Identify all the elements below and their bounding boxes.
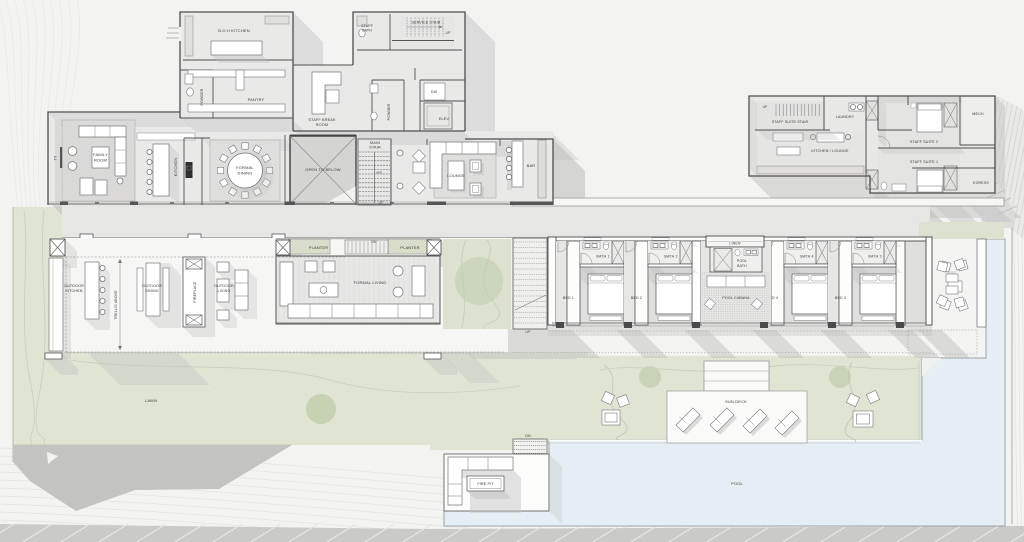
svg-text:PLANTER: PLANTER [309,245,329,250]
svg-text:MAIN: MAIN [370,141,380,145]
svg-text:EGRESS: EGRESS [973,181,989,185]
svg-text:DINING: DINING [145,289,159,293]
svg-text:ROOM: ROOM [94,158,107,163]
svg-text:STAFF SUITE 2: STAFF SUITE 2 [910,140,938,144]
svg-text:FAMILY: FAMILY [93,152,108,157]
svg-text:STAIR: STAIR [369,146,381,150]
svg-text:OUTDOOR: OUTDOOR [214,284,234,288]
svg-text:BAR: BAR [527,163,536,168]
svg-text:OPEN TO BELOW: OPEN TO BELOW [305,167,340,172]
svg-text:LINEN: LINEN [729,242,741,246]
svg-text:BATH: BATH [362,29,372,33]
svg-text:FIREPLACE: FIREPLACE [193,281,197,303]
svg-text:BATH: BATH [737,264,747,268]
svg-text:(AP): (AP) [376,171,383,175]
svg-text:STAFF: STAFF [361,24,374,28]
svg-text:UP: UP [763,105,768,109]
svg-text:BATH 3: BATH 3 [868,255,881,259]
svg-text:KITCHEN: KITCHEN [173,158,178,177]
svg-text:FORMAL LIVING: FORMAL LIVING [354,280,387,285]
svg-text:PANTRY: PANTRY [248,97,265,102]
svg-text:POWDER: POWDER [387,103,391,120]
svg-text:UP: UP [446,31,452,35]
svg-text:DN: DN [371,240,377,244]
svg-text:STAFF SUITE STAIR: STAFF SUITE STAIR [772,120,809,124]
svg-text:STAFF BREAK: STAFF BREAK [308,118,336,122]
svg-text:LAUNDRY: LAUNDRY [836,115,855,119]
svg-text:DN: DN [525,434,531,438]
svg-text:LAWN: LAWN [145,398,157,403]
svg-text:KITCHEN / LOUNGE: KITCHEN / LOUNGE [811,149,849,153]
svg-text:BED 2: BED 2 [631,296,642,300]
svg-text:SERVICE STAIR: SERVICE STAIR [412,21,441,25]
svg-text:POWDER: POWDER [200,88,204,105]
svg-text:DW: DW [431,90,438,94]
svg-text:OUTDOOR: OUTDOOR [142,284,162,288]
svg-text:MECH: MECH [972,112,984,116]
svg-text:SUN DECK: SUN DECK [725,399,747,404]
svg-text:B.O.H KITCHEN: B.O.H KITCHEN [218,28,250,33]
svg-text:ROOM: ROOM [316,123,328,127]
svg-text:ELEV: ELEV [439,117,450,121]
svg-text:BATH 1: BATH 1 [596,255,609,259]
svg-text:BED 1: BED 1 [563,296,574,300]
svg-text:POOL: POOL [737,259,747,263]
svg-text:DINING: DINING [238,171,253,176]
svg-text:TV: TV [54,155,58,160]
svg-text:PLANTER: PLANTER [400,245,420,250]
svg-text:FIRE PIT: FIRE PIT [477,482,494,486]
svg-text:LOUNGE: LOUNGE [447,173,465,178]
svg-text:POOL: POOL [731,481,743,486]
svg-text:KITCHEN: KITCHEN [65,289,82,293]
svg-text:STAFF SUITE 1: STAFF SUITE 1 [910,160,938,164]
svg-text:OUTDOOR: OUTDOOR [64,284,84,288]
svg-text:FORMAL: FORMAL [236,165,254,170]
svg-text:LIVING: LIVING [218,289,231,293]
svg-text:BED 3: BED 3 [835,296,846,300]
svg-text:TRELLIS ABOVE: TRELLIS ABOVE [114,290,118,320]
svg-text:BATH 2: BATH 2 [664,255,677,259]
svg-text:UP: UP [525,330,531,334]
svg-text:POOL CABANA: POOL CABANA [722,296,750,300]
svg-text:BATH 4: BATH 4 [800,255,813,259]
